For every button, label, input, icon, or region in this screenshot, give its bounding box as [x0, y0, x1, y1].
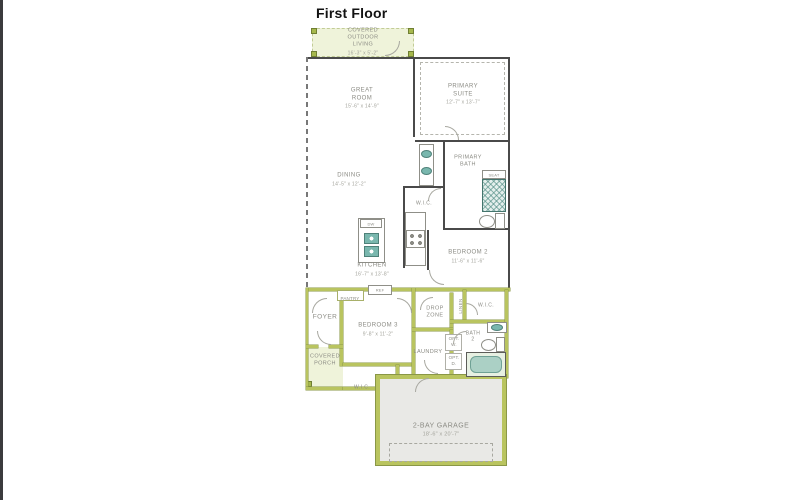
pantry-label: PANTRY	[340, 290, 359, 302]
room-name: BEDROOM 3	[358, 322, 398, 328]
room-dims: 9'-8" x 11'-2"	[358, 331, 398, 338]
door-arc	[424, 360, 438, 374]
room-name: LINEN	[458, 298, 463, 313]
kitchen-sink-icon	[364, 233, 379, 244]
wall-lime	[412, 288, 415, 378]
room-dims: 14'-5" x 12'-2"	[332, 181, 366, 188]
door-arc	[317, 331, 331, 345]
door-arc	[429, 270, 444, 285]
room-name: PRIMARY BATH	[454, 154, 482, 167]
room-name: W.I.C.	[478, 302, 494, 308]
toilet-icon	[481, 339, 496, 351]
page-title: First Floor	[316, 5, 387, 21]
wall	[415, 140, 510, 142]
linen-label: LINEN	[452, 298, 464, 313]
sink-icon	[421, 167, 432, 175]
room-name: W.I.C.	[416, 200, 432, 206]
floor-plan-canvas: First Floor DW REF	[0, 0, 800, 500]
wall	[427, 230, 429, 270]
room-name: COVERED OUTDOOR LIVING	[348, 28, 379, 48]
room-name: BEDROOM 2	[448, 249, 488, 255]
covered-porch-label: COVERED PORCH	[310, 346, 340, 367]
wall-lime	[343, 363, 415, 366]
bedroom-3-label: BEDROOM 3 9'-8" x 11'-2"	[358, 315, 398, 346]
wall-lime	[306, 288, 308, 390]
room-dims: 11'-6" x 11'-6"	[448, 258, 488, 265]
dining-label: DINING 14'-5" x 12'-2"	[332, 165, 366, 196]
room-dims: 18'-6" x 20'-7"	[413, 431, 469, 438]
wall	[306, 57, 510, 59]
dishwasher-label: DW	[367, 221, 374, 226]
wall-lime	[306, 387, 345, 390]
toilet-tank	[495, 213, 505, 229]
refrigerator-label: REF	[376, 287, 385, 292]
door-arc	[453, 331, 466, 344]
wic-bedroom3-label: W.I.C.	[354, 378, 370, 391]
shower-seat-label: SEAT	[489, 172, 500, 177]
range-icon	[406, 230, 425, 248]
covered-outdoor-living-label: COVERED OUTDOOR LIVING 16'-3" x 5'-2"	[348, 20, 379, 63]
great-room-label: GREAT ROOM 15'-6" x 14'-9"	[345, 80, 379, 119]
room-name: DINING	[337, 172, 360, 178]
room-name: COVERED PORCH	[310, 353, 340, 366]
room-dims: 16'-3" x 5'-2"	[348, 50, 379, 57]
room-name: PRIMARY SUITE	[448, 83, 478, 97]
toilet-icon	[479, 215, 495, 228]
wall-dashed	[306, 57, 308, 290]
room-name: KITCHEN	[357, 262, 386, 268]
toilet-tank	[496, 337, 505, 352]
garage-label: 2-BAY GARAGE 18'-6" x 20'-7"	[413, 412, 469, 447]
room-name: PANTRY	[340, 296, 359, 301]
wall	[413, 57, 415, 137]
wic-primary-label: W.I.C.	[416, 194, 432, 207]
wall	[508, 57, 510, 290]
door-arc	[397, 298, 412, 313]
room-name: BATH 2	[466, 330, 481, 343]
room-dims: 15'-6" x 14'-9"	[345, 104, 379, 111]
drop-zone-label: DROP ZONE	[426, 298, 444, 319]
laundry-label: LAUNDRY	[414, 342, 443, 356]
primary-bath-label: PRIMARY BATH	[454, 147, 482, 168]
room-name: GREAT ROOM	[351, 87, 373, 101]
room-dims: 16'-7" x 13'-8"	[355, 271, 389, 278]
opt-dryer-label: OPT. D.	[449, 355, 460, 367]
foyer-label: FOYER	[313, 306, 337, 323]
kitchen-label: KITCHEN 16'-7" x 13'-8"	[355, 255, 389, 286]
door-arc	[466, 303, 478, 315]
porch-post	[408, 28, 414, 34]
porch-post	[311, 28, 317, 34]
wall-lime	[412, 328, 453, 331]
shower-icon	[482, 179, 506, 212]
left-edge-strip	[0, 0, 3, 500]
room-dims: 12'-7" x 13'-7"	[446, 100, 480, 107]
bath-2-label: BATH 2	[466, 323, 481, 343]
room-name: W.I.C.	[354, 384, 370, 390]
sink-icon	[491, 324, 503, 331]
bedroom-2-label: BEDROOM 2 11'-6" x 11'-6"	[448, 242, 488, 273]
room-name: FOYER	[313, 314, 337, 321]
room-name: DROP ZONE	[426, 305, 444, 318]
sink-icon	[421, 150, 432, 158]
room-name: LAUNDRY	[414, 349, 443, 355]
primary-suite-label: PRIMARY SUITE 12'-7" x 13'-7"	[446, 76, 480, 115]
bathtub-basin	[470, 356, 502, 373]
wall-lime	[340, 296, 343, 366]
wic-bedroom2-label: W.I.C.	[478, 296, 494, 309]
room-name: 2-BAY GARAGE	[413, 422, 469, 429]
